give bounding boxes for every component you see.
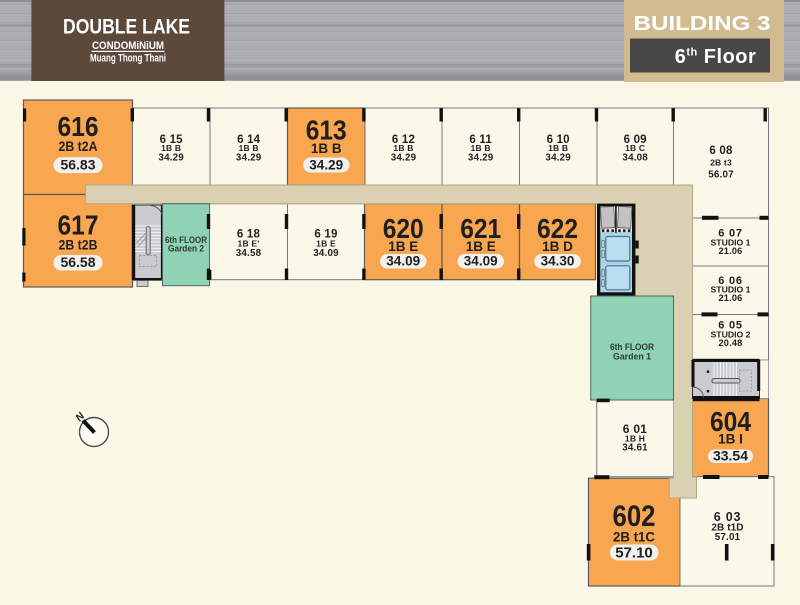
svg-text:1B B: 1B B <box>548 143 568 153</box>
svg-text:34.09: 34.09 <box>386 254 420 269</box>
svg-text:21.06: 21.06 <box>719 246 743 256</box>
svg-text:1B E: 1B E <box>316 239 336 249</box>
svg-text:2B t1C: 2B t1C <box>613 529 655 545</box>
svg-text:34.29: 34.29 <box>545 153 571 164</box>
svg-text:1B E': 1B E' <box>238 239 260 249</box>
svg-text:1B B: 1B B <box>471 143 491 153</box>
svg-text:34.29: 34.29 <box>391 153 417 164</box>
svg-text:1B B: 1B B <box>239 143 259 153</box>
svg-text:BUILDING 3: BUILDING 3 <box>634 13 771 35</box>
svg-text:34.29: 34.29 <box>309 157 343 172</box>
svg-text:34.29: 34.29 <box>468 153 494 164</box>
svg-text:34.58: 34.58 <box>236 248 262 259</box>
svg-text:DOUBLE LAKE: DOUBLE LAKE <box>63 15 190 39</box>
svg-text:Garden 2: Garden 2 <box>168 244 204 254</box>
svg-text:6 08: 6 08 <box>709 145 733 157</box>
svg-text:CONDOMiNiUM: CONDOMiNiUM <box>92 40 164 52</box>
svg-text:1B D: 1B D <box>542 239 573 254</box>
svg-text:57.01: 57.01 <box>715 532 741 543</box>
svg-text:Muang Thong Thani: Muang Thong Thani <box>90 53 166 65</box>
svg-text:33.54: 33.54 <box>713 448 748 464</box>
svg-text:617: 617 <box>58 210 99 241</box>
svg-text:Garden 1: Garden 1 <box>613 352 652 363</box>
svg-text:56.07: 56.07 <box>708 170 734 181</box>
svg-text:34.30: 34.30 <box>541 254 575 269</box>
svg-text:34.61: 34.61 <box>622 443 648 454</box>
svg-text:2B t3: 2B t3 <box>710 158 732 168</box>
svg-text:1B B: 1B B <box>393 143 413 153</box>
svg-text:57.10: 57.10 <box>615 545 653 562</box>
svg-text:34.08: 34.08 <box>622 153 648 164</box>
svg-text:2B t2B: 2B t2B <box>59 238 98 253</box>
svg-text:34.29: 34.29 <box>158 153 184 164</box>
svg-text:34.09: 34.09 <box>313 248 339 259</box>
svg-text:1B B: 1B B <box>311 141 342 156</box>
svg-text:20.48: 20.48 <box>719 338 743 348</box>
svg-text:1B I: 1B I <box>718 432 743 447</box>
svg-text:56.58: 56.58 <box>60 254 95 270</box>
svg-text:56.83: 56.83 <box>60 157 95 173</box>
svg-text:1B C: 1B C <box>625 143 645 153</box>
svg-text:616: 616 <box>58 111 99 142</box>
svg-text:21.06: 21.06 <box>719 293 743 303</box>
svg-text:1B E: 1B E <box>466 239 496 254</box>
svg-text:1B E: 1B E <box>388 239 418 254</box>
svg-text:34.29: 34.29 <box>236 153 262 164</box>
svg-text:1B B: 1B B <box>161 143 181 153</box>
svg-text:34.09: 34.09 <box>464 254 498 269</box>
svg-text:2B t2A: 2B t2A <box>59 139 98 154</box>
